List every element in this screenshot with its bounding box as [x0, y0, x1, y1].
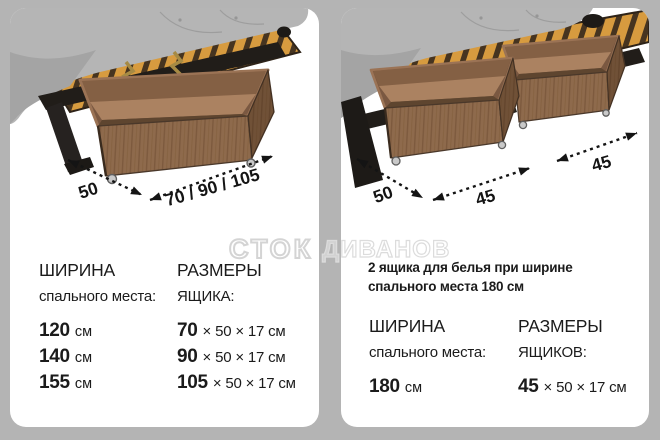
drawer-note: 2 ящика для белья при ширине спального м…	[368, 258, 573, 296]
storage-drawer-right	[503, 36, 625, 129]
width-value: 155	[39, 372, 70, 394]
width-value: 120	[39, 320, 70, 342]
caster-wheel	[392, 157, 400, 165]
arrowhead	[432, 193, 445, 204]
width-unit: см	[75, 376, 92, 392]
depth-label: 50	[370, 182, 395, 208]
caster-wheel	[519, 121, 526, 128]
caster-wheel	[498, 141, 505, 148]
note-line-1: 2 ящика для белья при ширине	[368, 258, 573, 277]
arrowhead	[411, 189, 425, 202]
left-panel: 50 70 / 90 / 105 ШИРИНА спального места:…	[10, 8, 319, 427]
infographic: 50 70 / 90 / 105 ШИРИНА спального места:…	[0, 0, 660, 440]
widths-label: 70 / 90 / 105	[163, 164, 262, 210]
size-rest: × 50 × 17 см	[544, 379, 627, 396]
drawer-size-spec: РАЗМЕРЫ ЯЩИКА: 70× 50 × 17 см 90× 50 × 1…	[177, 262, 296, 397]
width1-label: 45	[473, 185, 497, 210]
width-unit: см	[75, 350, 92, 366]
tuft-button	[479, 16, 482, 19]
tuft-button	[535, 14, 538, 17]
drawer-front-face	[98, 116, 252, 176]
size-value: 105	[177, 372, 208, 394]
size-value: 45	[518, 376, 539, 398]
size-rest: × 50 × 17 см	[213, 375, 296, 392]
width-unit: см	[405, 380, 422, 396]
sofa-double-drawer-illustration: 50 45 45	[341, 8, 649, 220]
note-line-2: спального места 180 см	[368, 277, 573, 296]
spec-title: РАЗМЕРЫ	[518, 318, 627, 335]
width-row: 180см	[369, 376, 486, 402]
arrowhead	[556, 153, 569, 165]
width-row: 155см	[39, 372, 156, 398]
arrowhead	[130, 187, 144, 199]
size-rest: × 50 × 17 см	[203, 349, 286, 366]
spec-title: ШИРИНА	[369, 318, 486, 335]
storage-drawer-left	[371, 58, 519, 165]
drawer-front-face	[385, 100, 503, 158]
bed-width-spec: ШИРИНА спального места: 120см 140см 155с…	[39, 262, 156, 397]
arrowhead	[149, 192, 162, 204]
width-row: 140см	[39, 346, 156, 372]
caster-wheel	[603, 110, 609, 116]
size-value: 70	[177, 320, 198, 342]
width-unit: см	[75, 324, 92, 340]
spec-title: ШИРИНА	[39, 262, 156, 279]
sofa-single-drawer-illustration: 50 70 / 90 / 105	[10, 8, 319, 220]
width-row: 120см	[39, 320, 156, 346]
tuft-button	[178, 18, 181, 21]
spec-title: РАЗМЕРЫ	[177, 262, 296, 279]
size-value: 90	[177, 346, 198, 368]
width2-label: 45	[589, 151, 613, 176]
spec-subtitle: ЯЩИКА:	[177, 289, 296, 304]
arrowhead	[625, 129, 638, 141]
width-value: 180	[369, 376, 400, 398]
spec-subtitle: ЯЩИКОВ:	[518, 345, 627, 360]
arrowhead	[518, 164, 531, 175]
size-row: 70× 50 × 17 см	[177, 320, 296, 346]
arrowhead	[261, 152, 274, 164]
bed-width-spec: ШИРИНА спального места: 180см	[369, 318, 486, 402]
width-value: 140	[39, 346, 70, 368]
frame-knob	[582, 14, 604, 28]
right-panel: 50 45 45 2 ящика для белья при ширине сп…	[341, 8, 649, 427]
size-row: 45× 50 × 17 см	[518, 376, 627, 402]
spec-subtitle: спального места:	[39, 289, 156, 304]
size-row: 105× 50 × 17 см	[177, 372, 296, 398]
caster-wheel	[108, 175, 117, 184]
frame-knob	[277, 27, 291, 38]
drawer-front-face	[515, 72, 609, 122]
size-rest: × 50 × 17 см	[203, 323, 286, 340]
drawer-size-spec: РАЗМЕРЫ ЯЩИКОВ: 45× 50 × 17 см	[518, 318, 627, 402]
sofa-arm	[341, 96, 383, 188]
depth-label: 50	[76, 178, 101, 203]
spec-subtitle: спального места:	[369, 345, 486, 360]
tuft-button	[234, 16, 237, 19]
size-row: 90× 50 × 17 см	[177, 346, 296, 372]
